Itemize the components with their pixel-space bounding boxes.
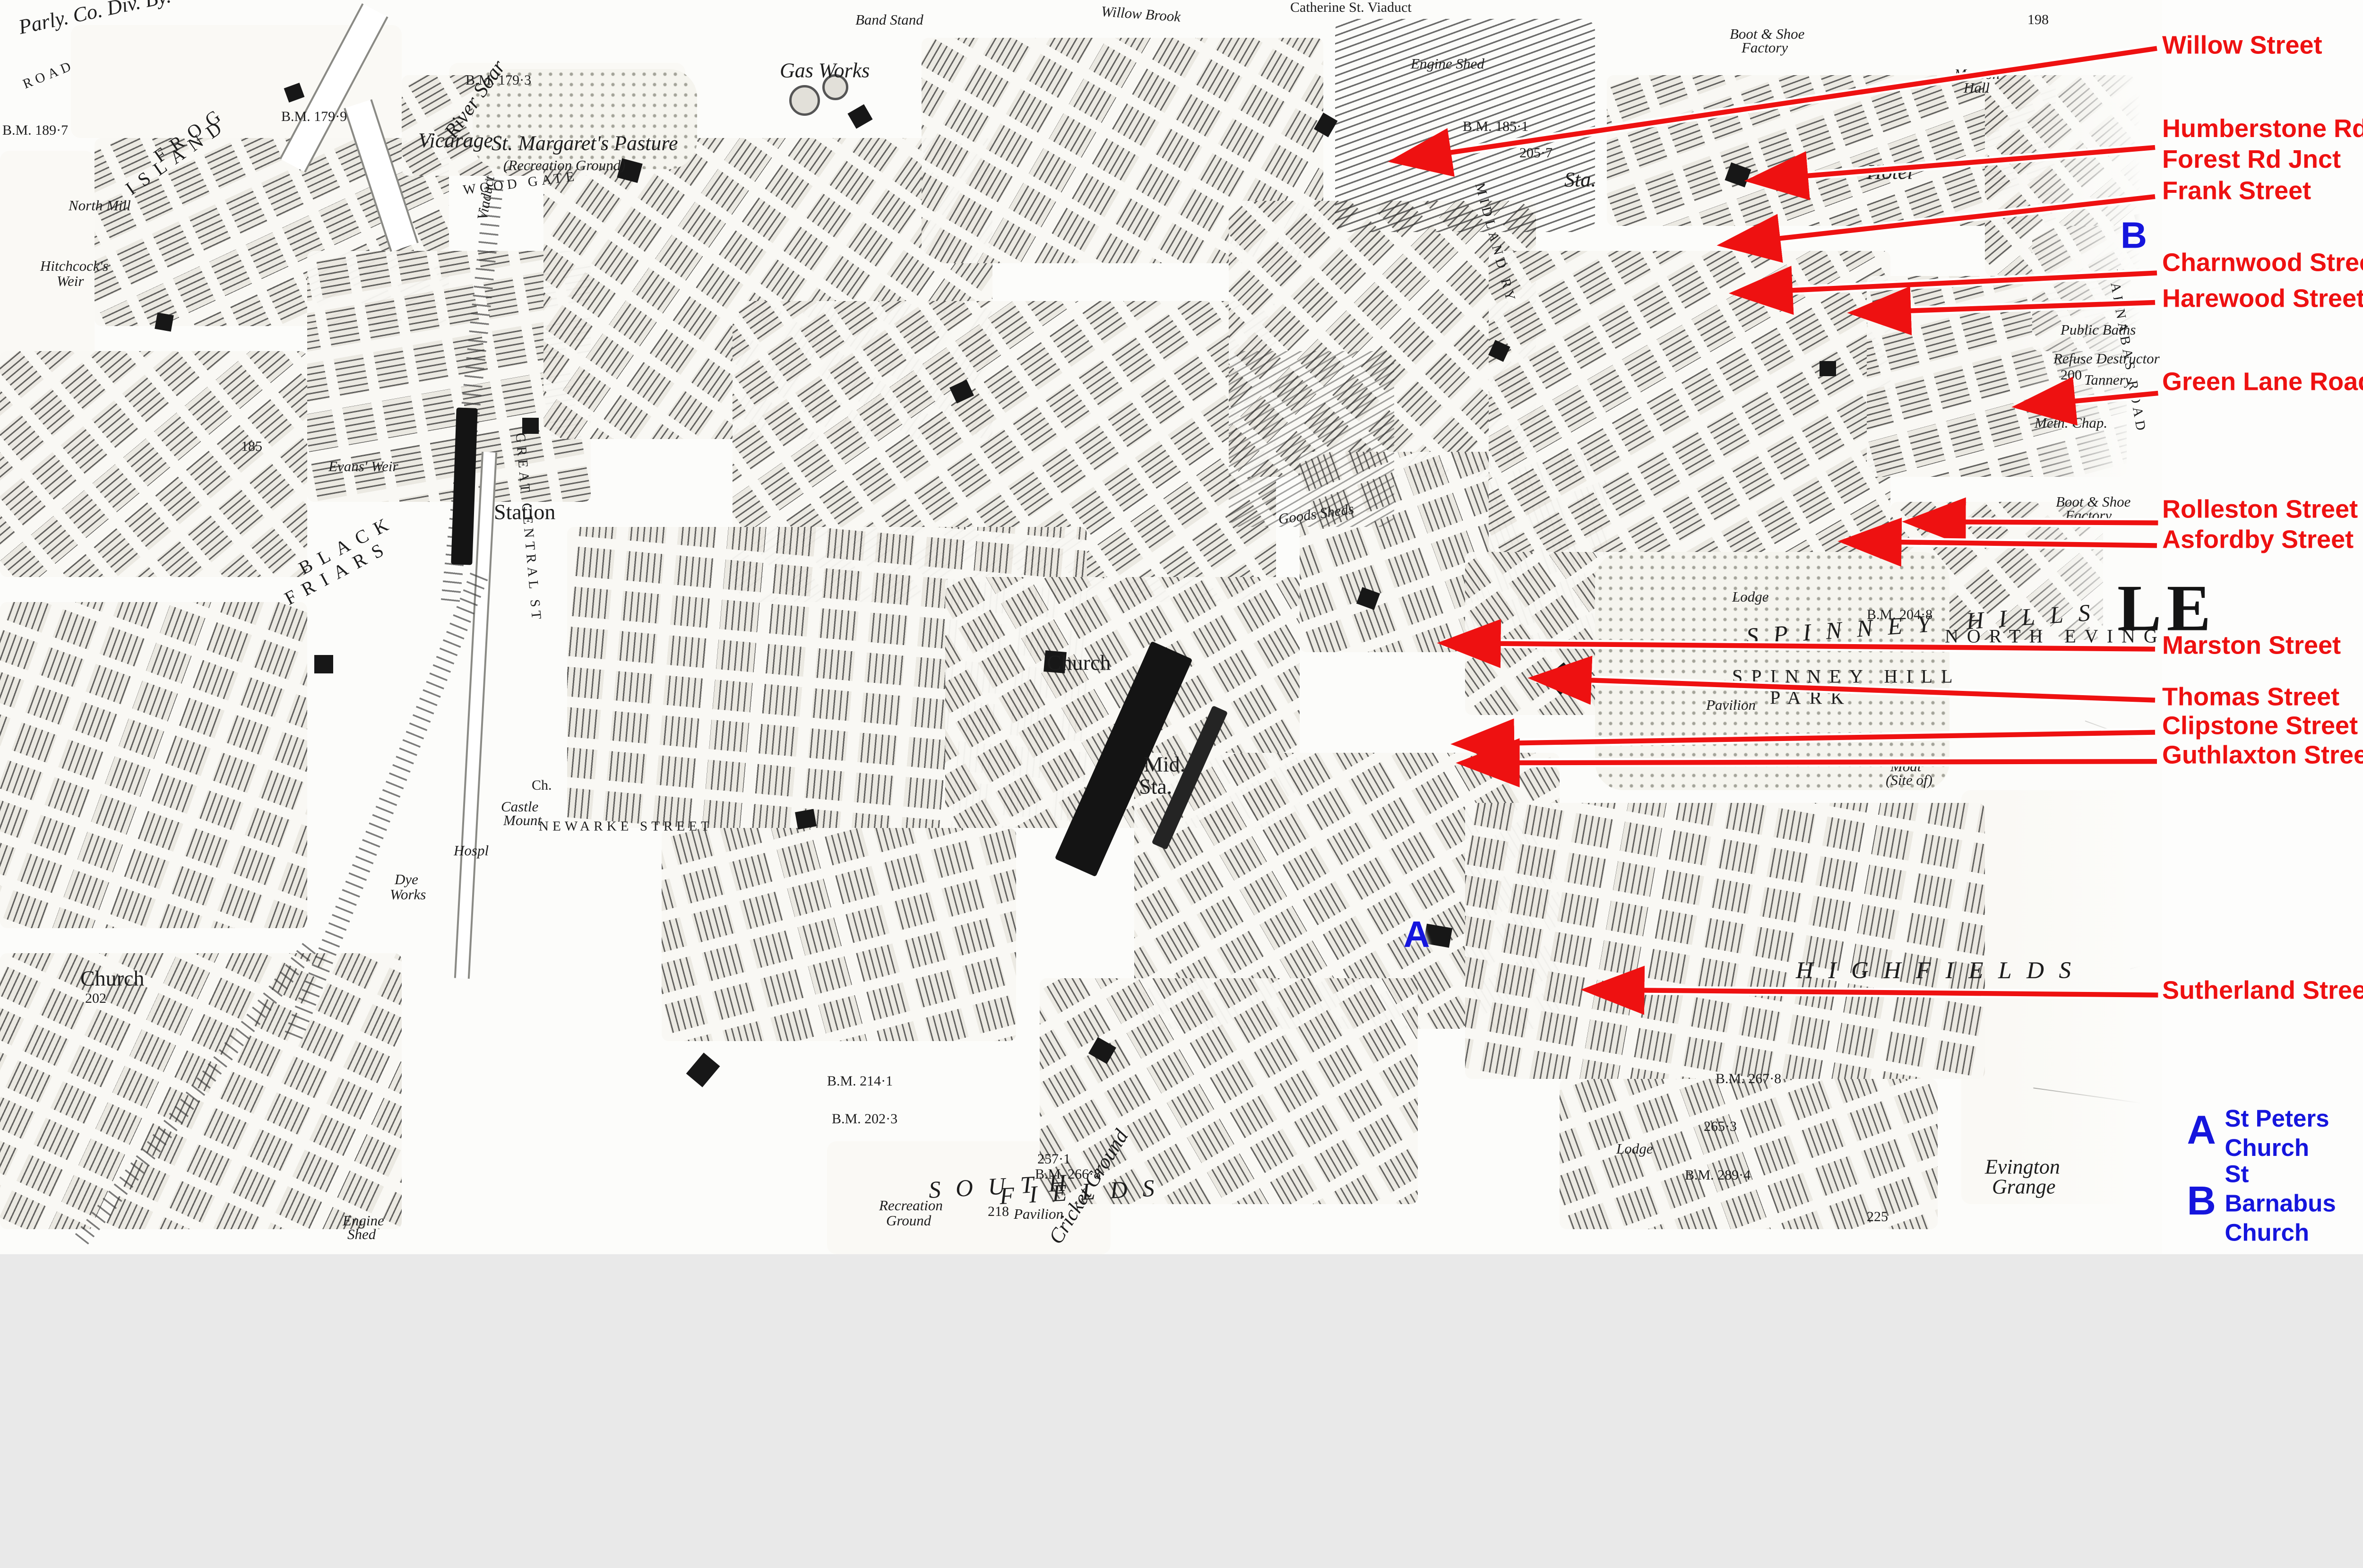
street-annotation-label: Harewood Street — [2162, 284, 2363, 314]
street-annotation-label: Willow Street — [2162, 30, 2322, 61]
annotation-text: Willow Street — [2162, 30, 2322, 61]
church-marker-a: A — [1404, 913, 1430, 956]
legend-name-line: Church — [2225, 1218, 2363, 1248]
legend-letter-b: B — [2187, 1178, 2216, 1224]
annotation-text: Sutherland Street — [2162, 975, 2363, 1006]
leader-line — [1395, 48, 2157, 161]
annotation-arrows — [0, 0, 2363, 1254]
annotation-text: Harewood Street — [2162, 284, 2363, 314]
annotation-text: Thomas Street — [2162, 681, 2339, 712]
street-annotation-label: Rolleston Street — [2162, 494, 2358, 525]
street-annotation-label: Asfordby Street — [2162, 524, 2354, 555]
leader-line — [1535, 678, 2155, 700]
annotation-text: Rolleston Street — [2162, 494, 2358, 525]
street-annotation-label: Sutherland Street — [2162, 975, 2363, 1006]
legend-letter-a: A — [2187, 1107, 2216, 1154]
street-annotation-label: Humberstone RdForest Rd Jnct — [2162, 113, 2363, 175]
leader-line — [1736, 273, 2157, 293]
map-canvas: Parly. Co. Div. By.ROADB.M. 189·7B.M. 17… — [0, 0, 2363, 1254]
legend-name: St PetersChurch — [2225, 1104, 2329, 1163]
legend-name-line: Church — [2225, 1133, 2329, 1163]
annotation-text: Asfordby Street — [2162, 524, 2354, 555]
annotation-text: Marston Street — [2162, 630, 2341, 661]
annotation-text: Clipstone Street — [2162, 711, 2358, 741]
annotation-text: Charnwood Street — [2162, 248, 2363, 278]
leader-line — [1724, 197, 2155, 245]
leader-line — [1751, 147, 2155, 181]
street-annotation-label: Marston Street — [2162, 630, 2341, 661]
annotation-text: Forest Rd Jnct — [2162, 144, 2363, 175]
street-annotation-label: Guthlaxton Street — [2162, 740, 2363, 770]
leader-line — [1463, 761, 2157, 763]
legend-name-line: St Barnabus — [2225, 1160, 2363, 1218]
annotation-text: Frank Street — [2162, 176, 2311, 207]
annotation-text: Humberstone Rd — [2162, 113, 2363, 144]
annotation-text: Green Lane Road — [2162, 367, 2363, 397]
annotation-text: Guthlaxton Street — [2162, 740, 2363, 770]
street-annotation-label: Thomas Street — [2162, 681, 2339, 712]
legend-name: St BarnabusChurch — [2225, 1160, 2363, 1248]
leader-line — [1909, 522, 2158, 523]
legend-name-line: St Peters — [2225, 1104, 2329, 1133]
leader-line — [2019, 393, 2158, 406]
street-annotation-label: Green Lane Road — [2162, 367, 2363, 397]
church-marker-b: B — [2121, 215, 2147, 257]
street-annotation-label: Frank Street — [2162, 176, 2311, 207]
street-annotation-label: Charnwood Street — [2162, 248, 2363, 278]
street-annotation-label: Clipstone Street — [2162, 711, 2358, 741]
